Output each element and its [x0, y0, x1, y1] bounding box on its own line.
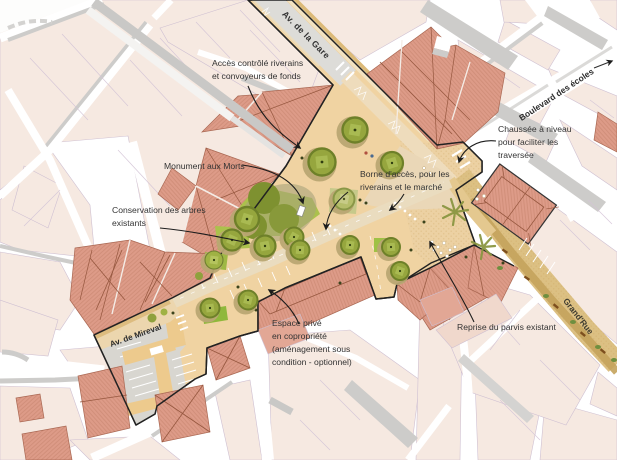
svg-text:Chaussée à niveau: Chaussée à niveau: [498, 124, 572, 134]
svg-text:Monument aux Morts: Monument aux Morts: [164, 161, 245, 171]
svg-text:Reprise du parvis existant: Reprise du parvis existant: [457, 322, 556, 332]
svg-text:en copropriété: en copropriété: [272, 331, 327, 341]
svg-text:riverains et le marché: riverains et le marché: [360, 182, 442, 192]
svg-text:condition - optionnel): condition - optionnel): [272, 357, 352, 367]
svg-text:Borne d'accès, pour les: Borne d'accès, pour les: [360, 169, 450, 179]
svg-text:pour faciliter les: pour faciliter les: [498, 137, 558, 147]
svg-text:et convoyeurs de fonds: et convoyeurs de fonds: [212, 71, 301, 81]
svg-text:(aménagement sous: (aménagement sous: [272, 344, 350, 354]
svg-text:Accès contrôlé riverains: Accès contrôlé riverains: [212, 58, 303, 68]
svg-text:Conservation des arbres: Conservation des arbres: [112, 205, 206, 215]
svg-text:existants: existants: [112, 218, 146, 228]
svg-text:traversée: traversée: [498, 150, 534, 160]
